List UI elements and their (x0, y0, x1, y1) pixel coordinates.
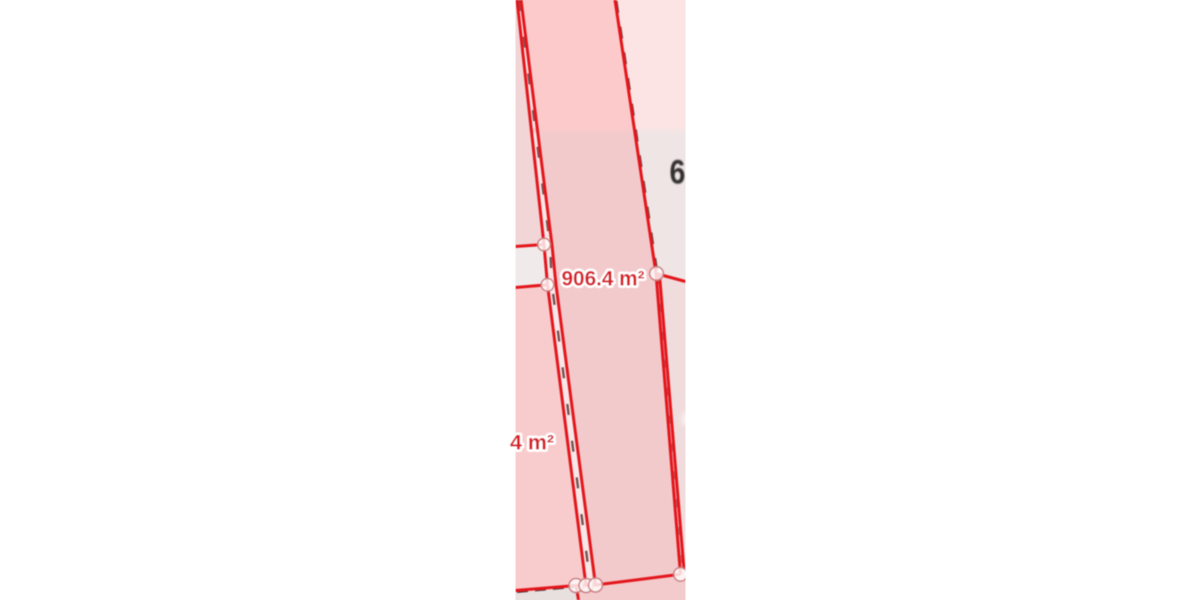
svg-text:4 m²: 4 m² (510, 431, 554, 454)
svg-text:6: 6 (670, 153, 686, 191)
svg-text:906.4 m²: 906.4 m² (562, 267, 645, 290)
